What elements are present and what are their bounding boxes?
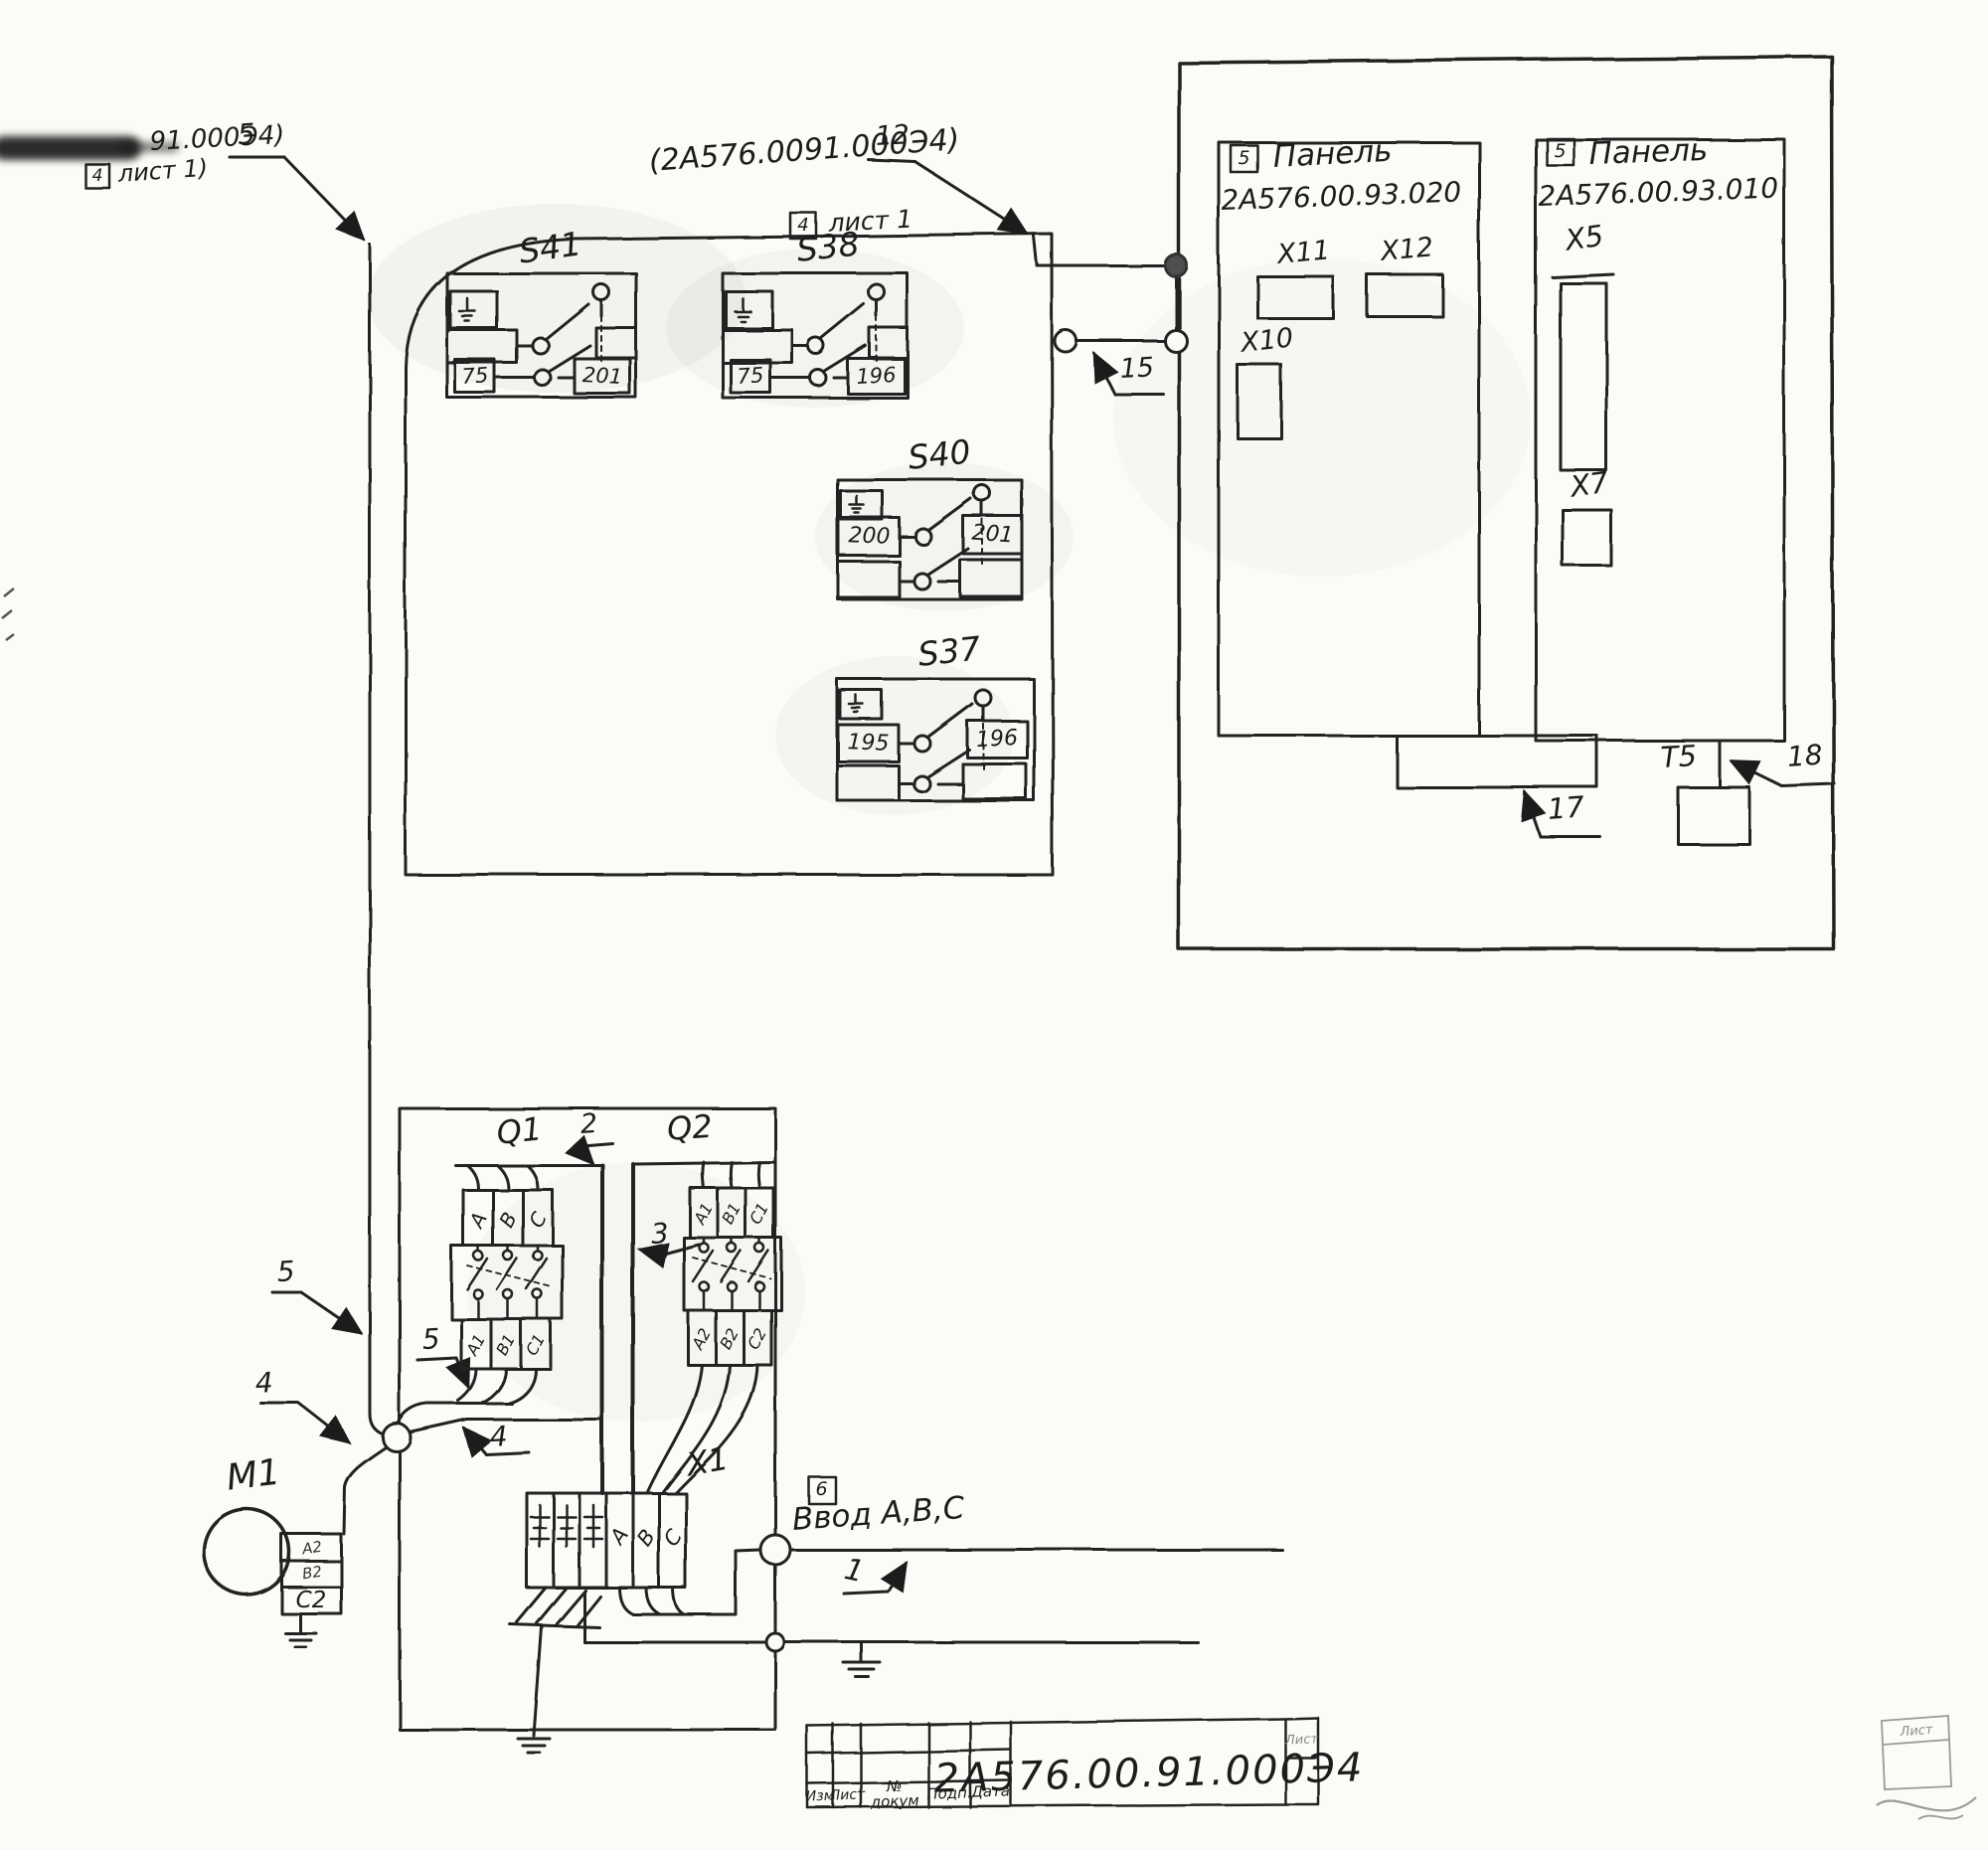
cable-label-12: 12	[875, 121, 911, 150]
input-crossing	[760, 1535, 790, 1565]
corner-sheet-label: Лист	[1886, 1718, 1946, 1744]
q1-name: Q1	[495, 1112, 544, 1149]
switch-s41-name: S41	[517, 227, 583, 267]
margin-marks	[2, 589, 14, 640]
t5-transformer	[1678, 787, 1749, 844]
x10-label: X10	[1240, 324, 1294, 356]
scanned-schematic-page: 91.000Э4) 4 лист 1) 5 (2А576.0091.000Э4)…	[0, 0, 1988, 1850]
wire-label-15: 15	[1119, 354, 1155, 383]
s40-wire-right: 201	[962, 514, 1024, 556]
panel2-ref-box: 5	[1547, 138, 1574, 165]
ref-top-left-sheet-box: 4	[85, 164, 109, 188]
t5-label: T5	[1660, 742, 1698, 772]
tb-col-list: Лист	[833, 1785, 863, 1804]
tb-sheet-cell: Лист	[1285, 1725, 1319, 1754]
panel2-number: 2А576.00.93.010	[1538, 175, 1779, 211]
panel1-title: Панель	[1272, 136, 1393, 173]
x11-label: X11	[1276, 237, 1331, 268]
tb-drawing-number: 2А576.00.91.000Э4	[1015, 1743, 1282, 1805]
cable-label-5-top: 5	[237, 120, 256, 149]
motor-terminal-c2: С2	[281, 1589, 341, 1612]
cable-label-4b: 4	[489, 1423, 508, 1451]
motor-junction	[383, 1424, 411, 1451]
s41-wire-left: 75	[454, 359, 496, 395]
bridge-strip-17	[1397, 736, 1597, 787]
x1-name: X1	[684, 1442, 731, 1481]
cable-label-2: 2	[580, 1110, 598, 1138]
x7-label: X7	[1569, 468, 1610, 502]
wire-label-18: 18	[1786, 742, 1824, 771]
cable-label-5b: 5	[421, 1325, 440, 1354]
x7-connector	[1563, 510, 1611, 566]
q2-name: Q2	[666, 1110, 714, 1145]
s37-wire-left: 195	[837, 724, 899, 762]
switch-s38-name: S38	[795, 227, 861, 265]
panel2-title: Панель	[1588, 135, 1709, 170]
ref-top-left-sheet: лист 1)	[117, 156, 209, 186]
switch-s37-name: S37	[916, 631, 982, 670]
s40-wire-left: 200	[838, 517, 900, 557]
motor-name: M1	[225, 1454, 282, 1496]
switch-s40-name: S40	[907, 434, 972, 473]
s37-wire-right: 196	[966, 719, 1028, 758]
panel1-ref-box: 5	[1231, 145, 1257, 172]
wire-label-17: 17	[1547, 792, 1585, 824]
cable-label-4a: 4	[254, 1369, 273, 1398]
panel1-number: 2А576.00.93.020	[1221, 179, 1462, 215]
x12-label: X12	[1380, 234, 1434, 265]
s38-wire-right: 196	[847, 358, 906, 396]
ref-top-left-number: 91.000Э4)	[149, 122, 285, 155]
junction-dot	[1165, 254, 1187, 276]
s41-wire-right: 201	[574, 358, 631, 396]
x5-connector	[1561, 283, 1606, 470]
cable-label-5a: 5	[276, 1258, 295, 1286]
feeder-line-5	[370, 245, 384, 1434]
s38-wire-left: 75	[730, 359, 771, 395]
tb-col-ndokum: № докум	[862, 1784, 928, 1804]
cable-label-3: 3	[650, 1220, 670, 1249]
ground-crossing	[766, 1633, 784, 1651]
x5-label: X5	[1564, 222, 1605, 255]
